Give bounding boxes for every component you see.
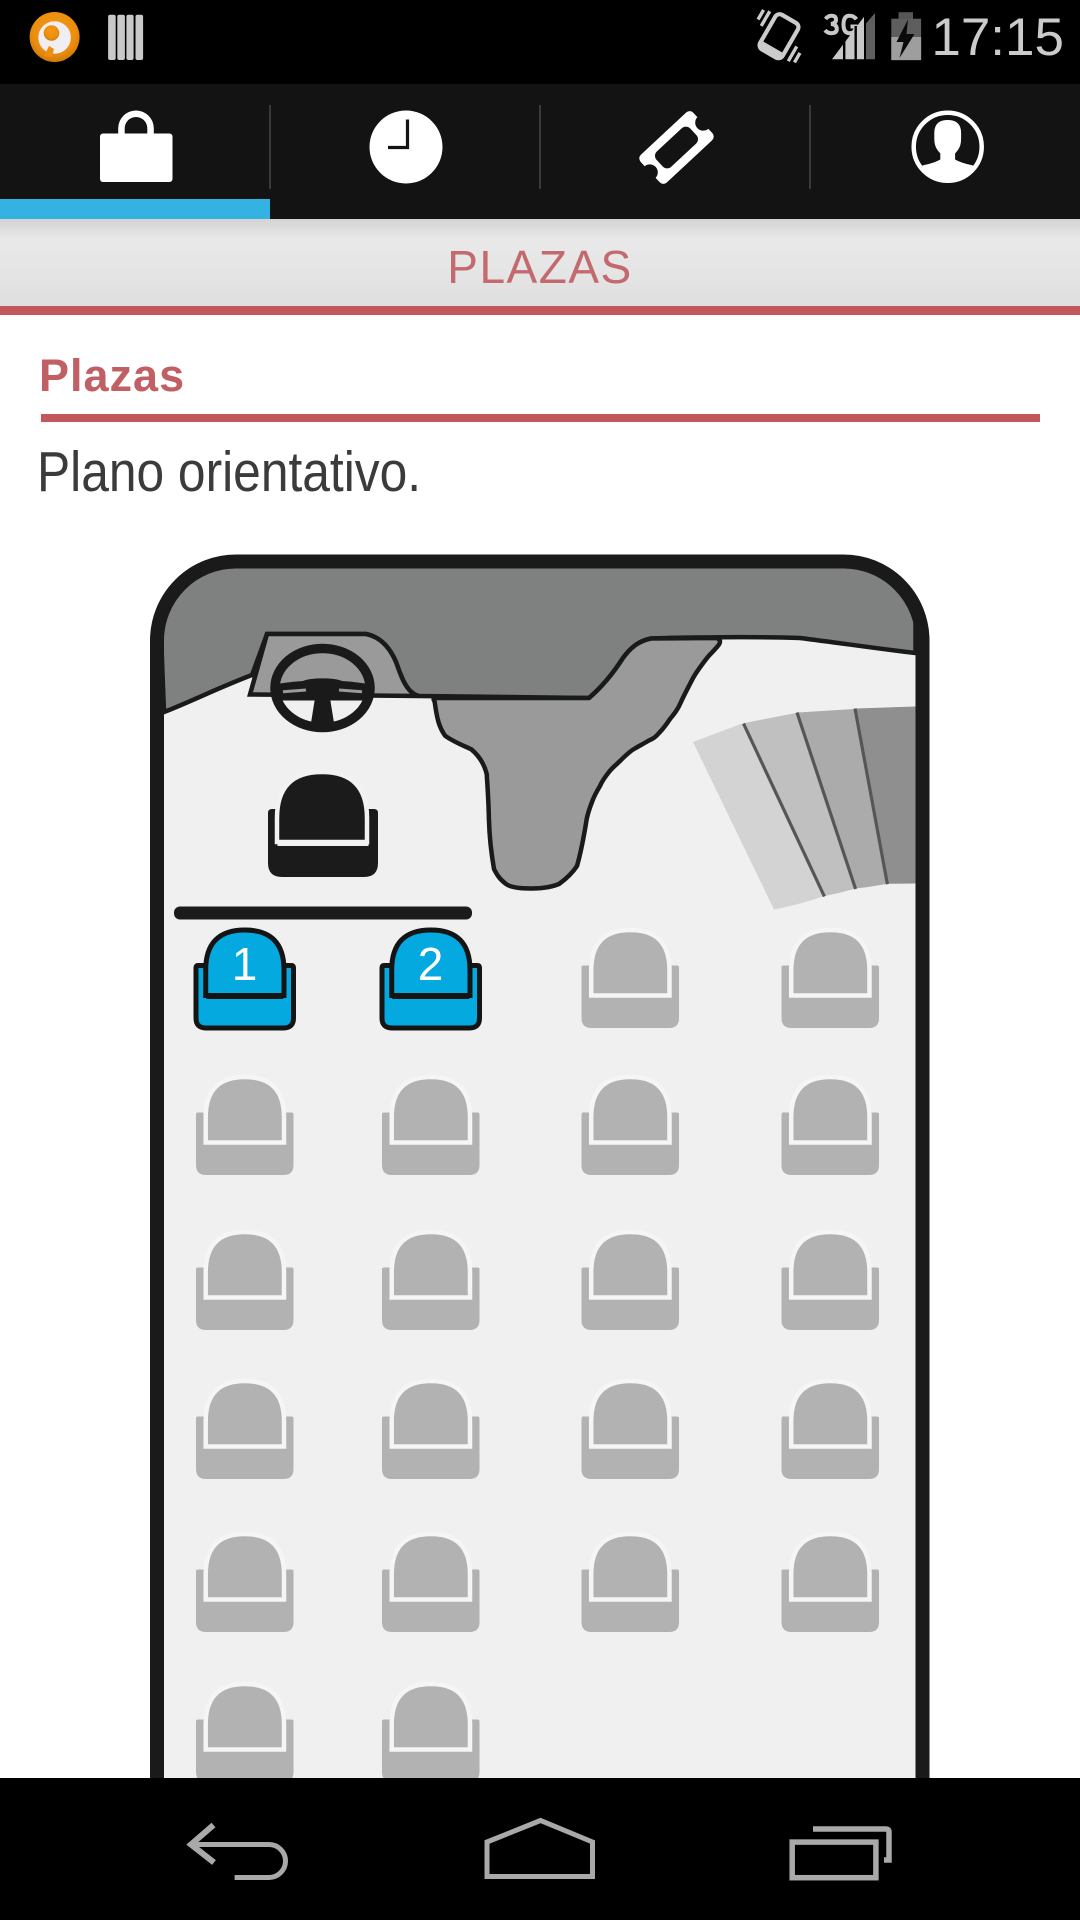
svg-text:1: 1	[232, 938, 258, 990]
svg-text:2: 2	[418, 938, 444, 990]
